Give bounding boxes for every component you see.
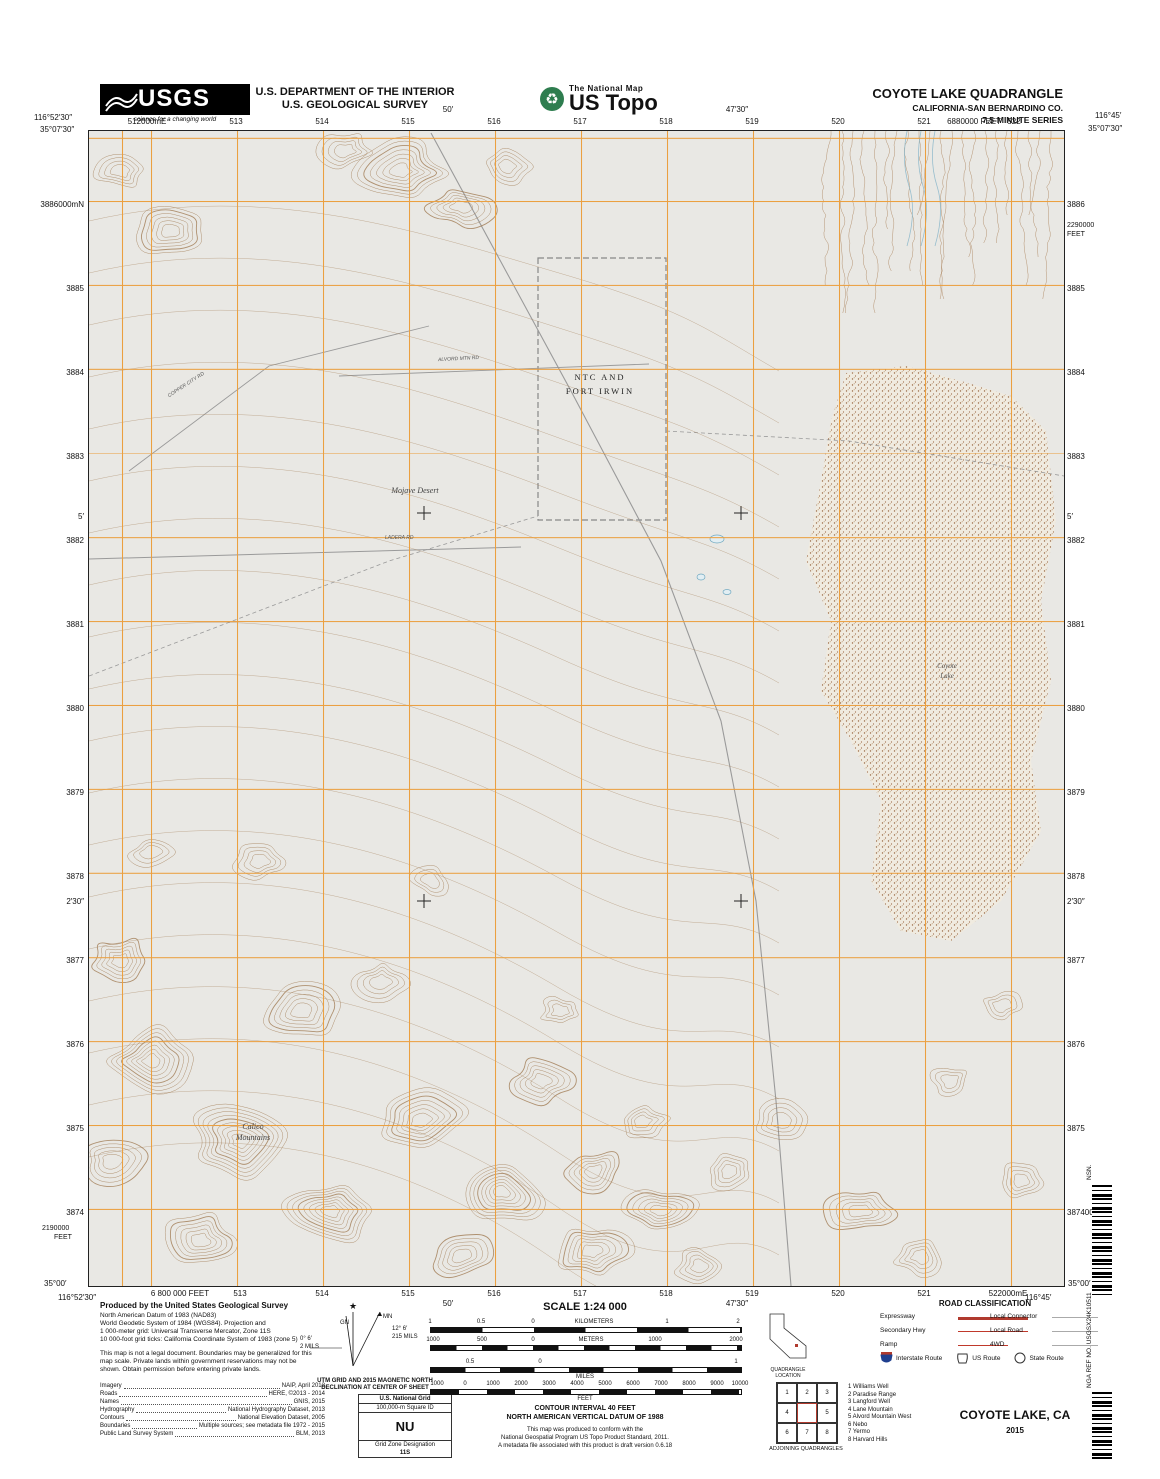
contour-line [181,1225,222,1253]
grid-number: 515 [401,117,414,126]
adj-cell: 5 [817,1403,837,1423]
quad-location-caption: QUADRANGLE LOCATION [758,1367,818,1379]
contour-line [110,164,129,177]
contour-line [431,193,492,225]
contour-line [137,1049,165,1072]
credit-label: Roads [100,1390,117,1398]
adjoining-quad-name: 2 Paradise Range [848,1392,911,1400]
credit-label: Names [100,1398,119,1406]
vertical-datum: NORTH AMERICAN VERTICAL DATUM OF 1988 [400,1413,770,1422]
contour-line [415,869,444,892]
produced-line: 1 000-meter grid: Universal Transverse M… [100,1328,315,1336]
contour-line [452,1249,471,1263]
legend-label: Local Connector [990,1313,1037,1320]
grid-number: 3883 [66,452,84,461]
mi-scale-bar [430,1367,742,1373]
contour-line [872,131,878,313]
feet-label-left-2: FEET [54,1234,72,1241]
contour-line [525,1070,558,1094]
adjoining-quad-name: 4 Lane Mountain [848,1407,911,1415]
contour-line [250,854,271,868]
credit-value: National Elevation Dataset, 2005 [238,1414,325,1422]
credit-label: Hydrography [100,1406,134,1414]
contour-line [910,1250,929,1265]
contour-line [823,1192,898,1229]
grid-number: 520 [831,117,844,126]
dept-line2: U.S. GEOLOGICAL SURVEY [190,99,520,112]
grid-number: 514 [315,1289,328,1298]
latitude-tick: 5′ [1067,512,1073,521]
feet-label-right: 2290000 [1067,222,1094,229]
contour-line [691,1259,709,1273]
grid-number: 3875 [1067,1124,1085,1133]
grid-number: 522000mE [989,1289,1028,1298]
corner-nw-lat: 35°07′30″ [40,125,74,134]
grid-number: 517 [573,1289,586,1298]
contour-line [443,1242,483,1271]
topo-artwork [89,131,1064,1286]
california-outline [767,1312,809,1360]
grid-number: 6 800 000 FEET [151,1289,209,1298]
dept-line1: U.S. DEPARTMENT OF THE INTERIOR [190,86,520,99]
grid-number: 3884 [1067,368,1085,377]
map-area [88,130,1065,1287]
contour-line [412,1113,433,1127]
us-route-shield-icon [956,1353,969,1364]
grid-number: 3877 [66,956,84,965]
contour-line [89,258,779,423]
contour-line [941,1075,959,1089]
contour-line [89,310,779,475]
data-credits: ImageryNAIP, April 2012 RoadsHERE, ©2013… [100,1382,325,1438]
contour-line [486,148,533,185]
scale-label: 1000 [648,1337,661,1343]
standard-line: National Geospatial Program US Topo Prod… [400,1434,770,1442]
contour-line [983,131,989,243]
state-route-circle-icon [1014,1352,1026,1364]
contour-line [674,1247,721,1283]
corner-ne-lat: 35°07′30″ [1088,124,1122,133]
grid-number: 3882 [1067,536,1085,545]
contour-line [482,1176,526,1207]
contour-line [89,883,779,1047]
contour-line [424,190,497,229]
legal-note: This map is not a legal document. Bounda… [100,1350,315,1374]
scale-label: 1 [428,1319,431,1325]
grid-number: 513 [233,1289,246,1298]
grid-number: 3875 [66,1124,84,1133]
contour-line [328,141,362,162]
latitude-tick: 2′30″ [1067,897,1085,906]
road-classification-title: ROAD CLASSIFICATION [880,1299,1090,1308]
scale-label: 0 [531,1337,534,1343]
grid-number: 516 [487,117,500,126]
grid-number: 3879 [1067,788,1085,797]
contour-line [94,1147,135,1178]
adj-cell: 2 [797,1383,817,1403]
scale-label: 2000 [729,1337,742,1343]
contour-line [320,1206,339,1218]
grid-number: 521 [917,1289,930,1298]
grid-number: 520 [831,1289,844,1298]
adj-cell: 1 [777,1383,797,1403]
ustopo-logo: ♻ The National Map US Topo [540,84,658,113]
grid-number: 3882 [66,536,84,545]
contour-line [438,1238,488,1274]
m-scale-bar [430,1345,742,1351]
production-notes: Produced by the United States Geological… [100,1302,315,1374]
quad-state-county: CALIFORNIA-SAN BERNARDINO CO. [872,103,1063,113]
adjoining-list: 1 Williams Well 2 Paradise Range 3 Langf… [848,1384,911,1444]
grid-number: 3880 [66,704,84,713]
latitude-tick: 2′30″ [66,897,84,906]
contour-line [383,158,419,180]
scale-label: 0 [463,1381,466,1387]
feet-word: FEET [430,1396,740,1402]
interstate-shield-icon [880,1352,893,1364]
contour-line [232,844,286,881]
legend-4wd: 4WD [990,1341,1004,1351]
adj-cell: 8 [817,1423,837,1443]
credit-row: ImageryNAIP, April 2012 [100,1382,325,1390]
contour-line [840,131,845,313]
contour-line [112,954,129,968]
corner-se-lat: 35°00′ [1068,1279,1091,1288]
barcode [1092,1392,1112,1462]
scale-label: 4000 [570,1381,583,1387]
legend-label: Expressway [880,1313,915,1320]
grid-number: 513 [229,117,242,126]
gn-degrees: 0° 6′ [300,1336,312,1342]
credit-value: BLM, 2013 [296,1430,325,1438]
feet-label-right-2: FEET [1067,231,1085,238]
contour-line [568,1235,622,1268]
contour-line [722,1164,737,1179]
corner-sw-lat: 35°00′ [44,1279,67,1288]
grid-number: 3876 [1067,1040,1085,1049]
adj-cell: 7 [797,1423,817,1443]
contour-line [650,1205,671,1216]
scale-label: 500 [477,1337,487,1343]
contour-line [627,1193,694,1227]
corner-nw-lon: 116°52′30″ [34,113,72,122]
contour-line [486,1179,521,1203]
label-coyote-lake-line2: Lake [940,672,954,680]
grid-number: 516 [487,1289,500,1298]
contour-line [563,1232,628,1271]
contour-line [992,999,1011,1013]
contour-line [1015,131,1028,285]
contour-line [369,974,392,989]
grid-number: 522 [1007,117,1020,126]
contour-line [90,1144,142,1183]
grid-number: 3876 [66,1040,84,1049]
svg-text:GN: GN [340,1320,349,1326]
label-calico-line1: Calico [242,1122,263,1131]
contour-line [822,131,831,285]
contour-line [994,131,999,243]
label-mojave-desert: Mojave Desert [391,486,438,495]
contour-line [140,845,163,859]
contour-line [165,1212,237,1262]
pond [697,574,705,580]
scale-label: 7000 [654,1381,667,1387]
grid-number: 3879 [66,788,84,797]
scale-label: 0 [538,1359,541,1365]
contour-line [89,935,779,1099]
legend-ramp: Ramp [880,1341,897,1351]
credit-row: HydrographyNational Hydrography Dataset,… [100,1406,325,1414]
grid-number: 3884 [66,368,84,377]
feet-label-left: 2190000 [42,1225,69,1232]
contour-line [1014,1174,1030,1188]
contour-line [1043,131,1053,299]
grid-number: 3878 [1067,872,1085,881]
contour-line [89,831,779,995]
contour-line [102,946,137,975]
contour-line [298,1194,358,1232]
credit-value: National Hydrography Dataset, 2013 [228,1406,325,1414]
longitude-tick: 50′ [443,105,453,114]
scale-label: 1 [665,1319,668,1325]
national-map-icon: ♻ [540,87,564,111]
contour-line [291,1003,312,1018]
road-line-ew [89,547,521,559]
contour-line [89,570,779,735]
contour-line [97,942,141,979]
contour-line [932,131,940,246]
contour-line [494,1185,511,1197]
contour-line [710,1153,749,1191]
produced-line: 10 000-foot grid ticks: California Coord… [100,1336,315,1344]
adjoining-quad-name: 3 Langford Well [848,1399,911,1407]
contour-line [494,155,522,177]
interstate-item: Interstate Route [880,1352,942,1364]
legend-label: Ramp [880,1341,897,1348]
scale-label: 2000 [514,1381,527,1387]
scale-label: 8000 [682,1381,695,1387]
grid-number: 519 [745,117,758,126]
scale-label: 2 [736,1319,739,1325]
contour-line [170,1217,232,1260]
adjoining-caption: ADJOINING QUADRANGLES [764,1446,848,1452]
contour-line [103,1154,123,1169]
contour-line [889,131,897,271]
contour-line [89,1039,779,1203]
contour-line [633,1196,688,1224]
state-location-inset: QUADRANGLE LOCATION [758,1312,818,1379]
contour-line [498,159,516,173]
contour-line [635,1115,653,1127]
contour-line [309,1200,348,1225]
contour-line [89,1143,779,1286]
adj-cell-center [797,1403,817,1423]
contour-line [156,221,183,241]
contour-line [577,1242,609,1261]
scale-label: 1 [734,1359,737,1365]
contour-line [680,1251,718,1280]
contour-line [397,1100,451,1137]
contour-line [849,1205,873,1217]
credit-row: ContoursNational Elevation Dataset, 2005 [100,1414,325,1422]
svg-text:★: ★ [349,1301,357,1311]
contour-line [112,1029,189,1091]
label-coyote-lake-line1: Coyote [937,662,957,670]
road-line-long [431,133,791,1286]
legend-secondary: Secondary Hwy [880,1327,926,1337]
adjoining-quads-grid: 1 2 3 4 5 6 7 8 [776,1382,838,1444]
scale-label: 0.5 [466,1359,474,1365]
contour-line [93,154,143,187]
svg-text:MN: MN [383,1314,392,1320]
legend-label: Secondary Hwy [880,1327,926,1334]
contour-line [364,145,437,190]
contour-line [89,674,779,839]
legend-local-connector: Local Connector [990,1313,1037,1323]
sheet-name: COYOTE LAKE, CA [930,1408,1100,1422]
contour-line [845,131,854,313]
grid-number: 3885 [66,284,84,293]
ustopo-label: US Topo [569,93,658,113]
contour-line [551,1004,569,1017]
us-route-item: US Route [956,1353,1000,1364]
grid-number: 3880 [1067,704,1085,713]
adjoining-quad-name: 7 Yermo [848,1429,911,1437]
legend-label: Local Road [990,1327,1023,1334]
grid-number: 3883 [1067,452,1085,461]
quad-name: COYOTE LAKE QUADRANGLE [872,86,1063,101]
contour-line [322,137,367,165]
contour-line [884,131,890,229]
boundary-dashes-west [89,516,538,676]
credit-label: Imagery [100,1382,122,1390]
usng-zone: 11S [359,1449,451,1457]
contour-line [89,206,779,371]
barcode [1092,1185,1112,1297]
contour-line [1031,131,1040,257]
credit-label: Boundaries [100,1422,130,1430]
grid-number: 3886000mN [40,200,84,209]
contour-line [718,1161,741,1183]
nga-ref-text: NGA REF NO. USGSX24K10511 [1086,1292,1093,1388]
produced-line: North American Datum of 1983 (NAD83) [100,1312,315,1320]
adjoining-quad-name: 5 Alvord Mountain West [848,1414,911,1422]
contour-line [515,1062,571,1102]
corner-sw-lon: 116°52′30″ [58,1293,96,1302]
contour-line [443,198,479,217]
gn-mils: 2 MILS [300,1344,319,1350]
adjoining-quad-name: 8 Harvard Hills [848,1437,911,1445]
produced-title: Produced by the United States Geological… [100,1302,315,1310]
scale-label: 6000 [626,1381,639,1387]
contour-line [334,144,356,158]
scale-label: 1000 [426,1337,439,1343]
mn-degrees: 12° 6′ [392,1326,407,1332]
contour-interval: CONTOUR INTERVAL 40 FEET [400,1404,770,1413]
contour-line [771,1112,791,1128]
scale-label: KILOMETERS [575,1319,614,1325]
contour-line [918,131,926,246]
pond [710,535,724,543]
adj-cell: 4 [777,1403,797,1423]
contour-line [146,213,193,247]
contour-line [904,131,915,271]
usgs-tagline: science for a changing world [100,114,250,123]
contour-line [962,131,971,257]
standard-line: This map was produced to conform with th… [400,1426,770,1434]
contour-line [579,1161,606,1182]
contour-interval-note: CONTOUR INTERVAL 40 FEET NORTH AMERICAN … [400,1404,770,1422]
contour-line [564,1152,619,1194]
contour-line [89,727,779,891]
route-shields: Interstate Route US Route State Route [880,1352,1105,1364]
road-line-nw [129,326,429,471]
grid-number: 518 [659,1289,672,1298]
credit-row: BoundariesMultiple sources; see metadata… [100,1422,325,1430]
contour-line [162,224,180,237]
standard-line: A metadata file associated with this pro… [400,1442,770,1450]
contour-line [351,963,411,1002]
contour-line [193,1104,287,1180]
credit-value: Multiple sources; see metadata file 1972… [199,1422,325,1430]
contour-line [969,131,976,285]
contour-line [904,131,912,246]
scale-label: 9000 [710,1381,723,1387]
label-ntc-line2: FORT IRWIN [566,386,634,396]
state-route-item: State Route [1014,1352,1063,1364]
grid-number: 515 [401,1289,414,1298]
contour-line [541,996,579,1022]
grid-number: 519 [745,1289,758,1298]
grid-number: 3874 [66,1208,84,1217]
legend-local-road: Local Road [990,1327,1023,1337]
contour-line [89,987,779,1151]
grid-number: 3878 [66,872,84,881]
legend-label: 4WD [990,1341,1004,1348]
corner-ne-lon: 116°45′ [1095,111,1121,120]
contour-line [860,131,869,285]
grid-number: 3885 [1067,284,1085,293]
grid-number: 3877 [1067,956,1085,965]
contour-line [920,131,930,285]
scale-label: 1000 [430,1381,443,1387]
grid-number: 3886 [1067,200,1085,209]
scale-label: 0 [531,1319,534,1325]
produced-line: World Geodetic System of 1984 (WGS84). P… [100,1320,315,1328]
contour-line [244,851,276,873]
adjoining-quad-name: 6 Nebo [848,1422,911,1430]
credit-label: Public Land Survey System [100,1430,173,1438]
contour-line [89,1091,779,1255]
contour-line [89,414,779,579]
contour-line [1004,131,1008,215]
grid-number: 517 [573,117,586,126]
label-road-3: LADERA RD [385,535,413,541]
grid-number: 6880000 FEET [947,117,1001,126]
contour-line [420,873,439,888]
contour-line [269,986,335,1032]
contour-line [315,1203,344,1222]
grid-number: 3881 [1067,620,1085,629]
scale-label: 3000 [542,1381,555,1387]
contour-line [842,1202,879,1220]
contour-line [198,1108,283,1177]
nsn-text: NSN. [1086,1164,1093,1180]
label-calico-line2: Mountains [236,1133,270,1142]
miles-word: MILES [430,1374,740,1380]
department-heading: U.S. DEPARTMENT OF THE INTERIOR U.S. GEO… [190,86,520,112]
scale-label: 1000 [486,1381,499,1387]
